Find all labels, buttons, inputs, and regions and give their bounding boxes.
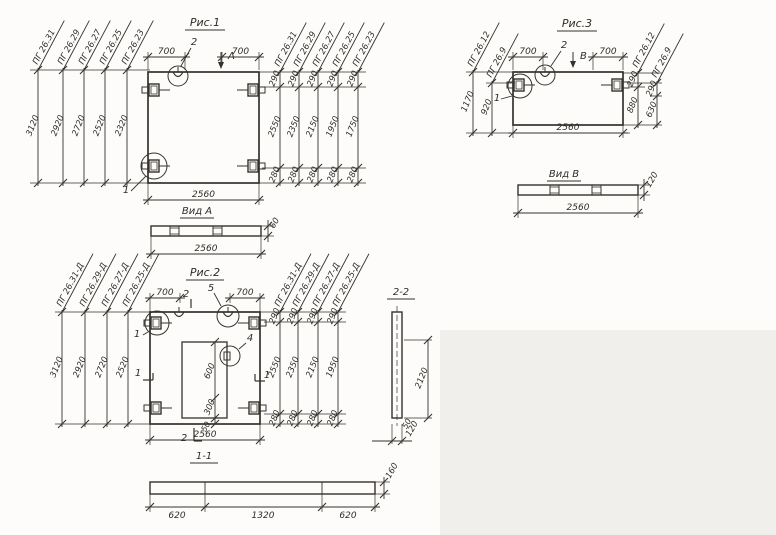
section-2-2-title: 2-2 [393, 287, 409, 298]
dim-value: 620 [339, 511, 356, 521]
dim-value: 700 [232, 47, 249, 57]
view-a-title: Вид А [182, 206, 212, 217]
dim-value: 2560 [192, 190, 215, 200]
view-b-title: Вид В [549, 169, 579, 180]
anchor-callout: 1 [123, 185, 129, 196]
dim-value: 2560 [195, 244, 218, 254]
dim-value: 700 [158, 47, 175, 57]
section-mark: 1 [135, 368, 141, 379]
dim-value: 700 [519, 47, 536, 57]
dim-value: 2560 [567, 203, 590, 213]
loop-callout: 5 [208, 283, 214, 294]
anchor-callout: 1 [134, 329, 140, 340]
loop-callout: 2 [561, 40, 567, 51]
view-letter: В [580, 51, 587, 62]
scanned-drawing-sheet: Рис.1 Рис.3 Рис.2 Вид А Вид В 1-1 2-2 ПГ… [0, 0, 776, 535]
dim-value: 700 [599, 47, 616, 57]
scan-shade [440, 330, 776, 535]
anchor-callout: 1 [494, 93, 500, 104]
blueprint-canvas: Рис.1 Рис.3 Рис.2 Вид А Вид В 1-1 2-2 ПГ… [0, 0, 776, 535]
fig2-title: Рис.2 [190, 266, 220, 279]
dim-value: 620 [168, 511, 185, 521]
opening-callout: 4 [247, 333, 253, 344]
section-mark: 2 [181, 433, 187, 444]
dim-value: 700 [236, 288, 253, 298]
section-1-1-title: 1-1 [196, 451, 212, 462]
dim-value: 1320 [252, 511, 275, 521]
dim-value: 2560 [194, 430, 217, 440]
loop-callout: 2 [191, 37, 197, 48]
fig1-title: Рис.1 [190, 16, 220, 29]
dim-value: 700 [156, 288, 173, 298]
dim-value: 2560 [557, 123, 580, 133]
fig3-title: Рис.3 [562, 17, 592, 30]
